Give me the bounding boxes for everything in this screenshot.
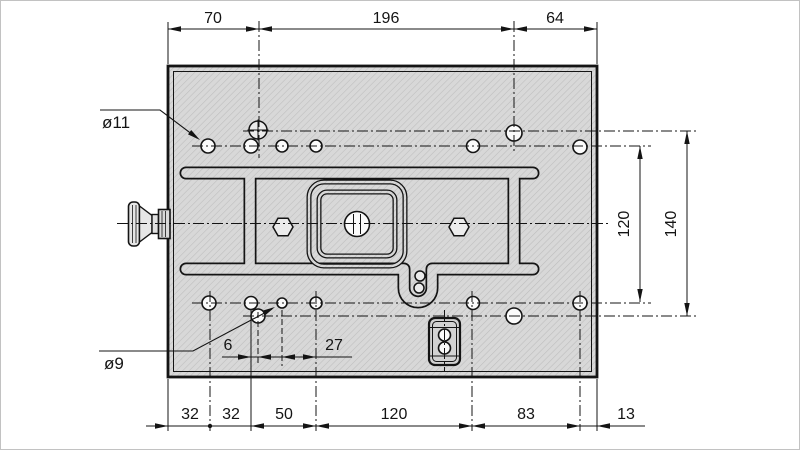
- dim-label-50: 50: [275, 406, 293, 423]
- dim-label-120r: 120: [616, 211, 633, 238]
- dim-label-140: 140: [663, 211, 680, 238]
- small-hole: [415, 271, 425, 281]
- dim-label-70: 70: [204, 10, 222, 27]
- callout-label-d9: ø9: [104, 354, 124, 373]
- dim-label-120b: 120: [381, 406, 408, 423]
- dim-label-196: 196: [373, 10, 400, 27]
- dim-label-64: 64: [546, 10, 564, 27]
- drawing-page: 70 196 64 32 32 50 120 83 13 120 140: [0, 0, 800, 450]
- dim-label-6: 6: [224, 337, 233, 354]
- dim-label-32b: 32: [222, 406, 240, 423]
- dim-label-27: 27: [325, 337, 343, 354]
- dim-label-32a: 32: [181, 406, 199, 423]
- hex-hole-right: [449, 218, 469, 235]
- small-hole: [414, 283, 424, 293]
- hole: [573, 140, 587, 154]
- technical-drawing: 70 196 64 32 32 50 120 83 13 120 140: [0, 0, 800, 450]
- callout-label-d11: ø11: [102, 113, 130, 132]
- hex-hole-left: [273, 218, 293, 235]
- dim-label-83: 83: [517, 406, 535, 423]
- dim-label-13: 13: [617, 406, 635, 423]
